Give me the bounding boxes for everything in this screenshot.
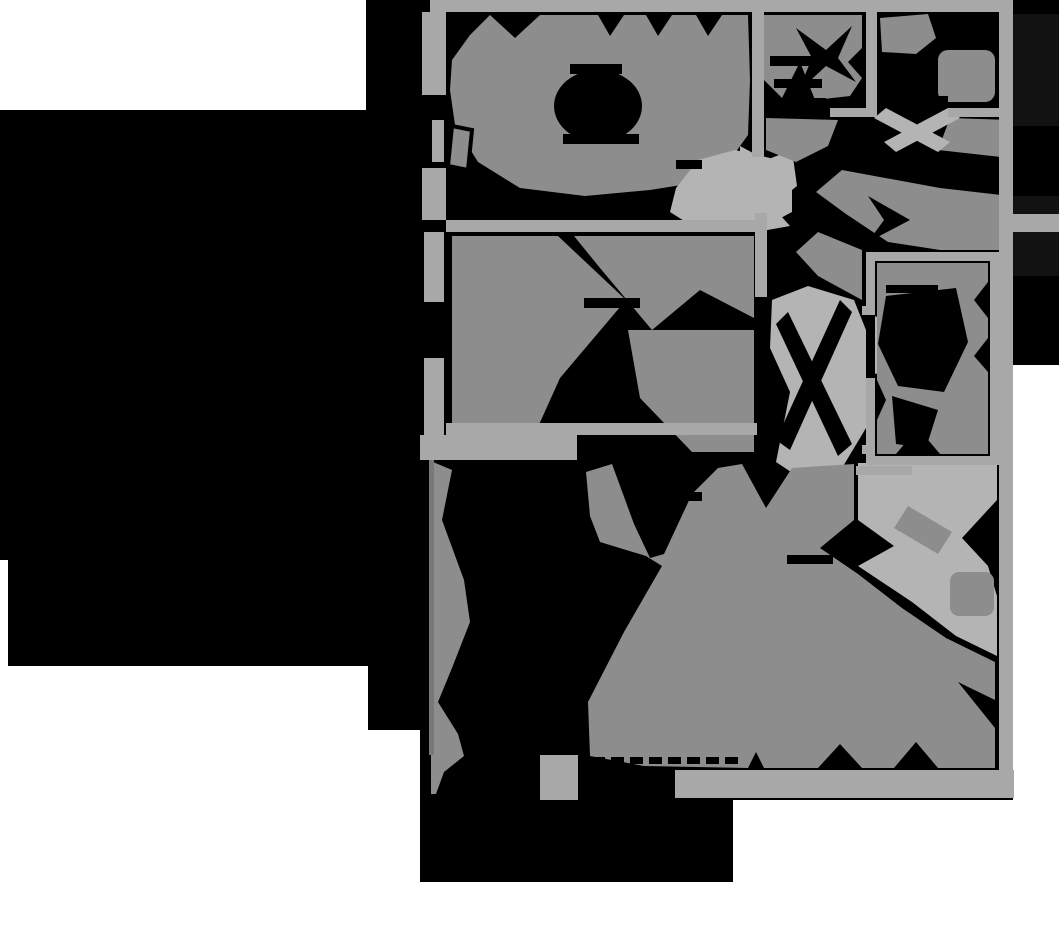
bedroom1-label-mark [584, 298, 640, 308]
wall-left-mid [422, 168, 446, 220]
bigroom-dash-row-dash-6 [706, 757, 719, 764]
wall-lower-stub [856, 466, 912, 475]
floor-plan-canvas [0, 0, 1059, 930]
entry-hall-fill-left [766, 118, 838, 162]
bedroom2-label-mark [886, 285, 938, 293]
entry-door-leaf [448, 126, 472, 170]
room-wc-sink-fill [880, 14, 936, 54]
bigroom-dash-row-dash-4 [668, 757, 681, 764]
wall-bed2-right [990, 252, 999, 465]
wall-bottom-left-thick [420, 435, 577, 460]
bathroom-label-mark-2 [774, 79, 822, 88]
wall-left-rail [429, 460, 434, 755]
wc-label-mark [900, 96, 948, 104]
hall-label-mark [676, 160, 702, 169]
floor-plan-svg [0, 0, 1059, 930]
bigroom-dash-row-dash-5 [687, 757, 700, 764]
wall-mid-horizontal [446, 220, 758, 232]
wall-divider-lower [755, 213, 767, 297]
room-wc-tub [938, 50, 995, 102]
entry-hall-band [816, 170, 1010, 250]
wall-left-upper [422, 12, 446, 95]
bigroom-dash-row-dash-0 [592, 757, 605, 764]
wall-bath-bottom [830, 108, 877, 117]
kitchen-table-blob [554, 70, 642, 142]
dark-hatch-top-right [1013, 14, 1059, 126]
wall-bed2-left-a [866, 252, 875, 312]
bigroom-dash-row-dash-1 [611, 757, 624, 764]
wall-bed1-bottom [446, 423, 757, 435]
wall-left-bed1-a [424, 232, 444, 302]
kitchen-label-mark-1 [570, 64, 622, 74]
bathroom-label-mark-3 [766, 98, 826, 106]
page-corner-top-left [0, 0, 366, 110]
wall-right-tee [1013, 214, 1059, 232]
wall-left-bed1-b [424, 358, 444, 435]
bigroom-label-mark-2 [787, 555, 833, 564]
wall-divider-upper [752, 12, 764, 157]
wall-left-window-stub [432, 120, 444, 162]
bathroom-label-mark-1 [770, 56, 825, 66]
wall-bed2-top [866, 252, 998, 261]
dark-hatch-below-tee [1013, 232, 1059, 276]
dark-hatch-mid-right [1013, 196, 1059, 214]
left-curtain-silhouette [431, 462, 470, 794]
wall-bottom [675, 770, 1014, 798]
bigroom-dash-row-dash-7 [725, 757, 738, 764]
wall-bed2-bottom [866, 456, 998, 465]
wall-bath-wc-divider [866, 12, 877, 108]
wall-right-outer [999, 12, 1013, 798]
bigroom-dash-row-dash-2 [630, 757, 643, 764]
bigroom-label-mark-1 [654, 492, 702, 501]
bigroom-dash-row-dash-3 [649, 757, 662, 764]
bigroom-side-table [950, 572, 994, 616]
wall-top [430, 0, 1013, 12]
wall-bed2-door-cap-b [862, 445, 875, 454]
page-sliver-left [0, 560, 8, 666]
wall-small-square [540, 755, 578, 800]
kitchen-label-mark-2 [563, 134, 639, 144]
wall-bed2-door-cap-a [862, 306, 875, 315]
